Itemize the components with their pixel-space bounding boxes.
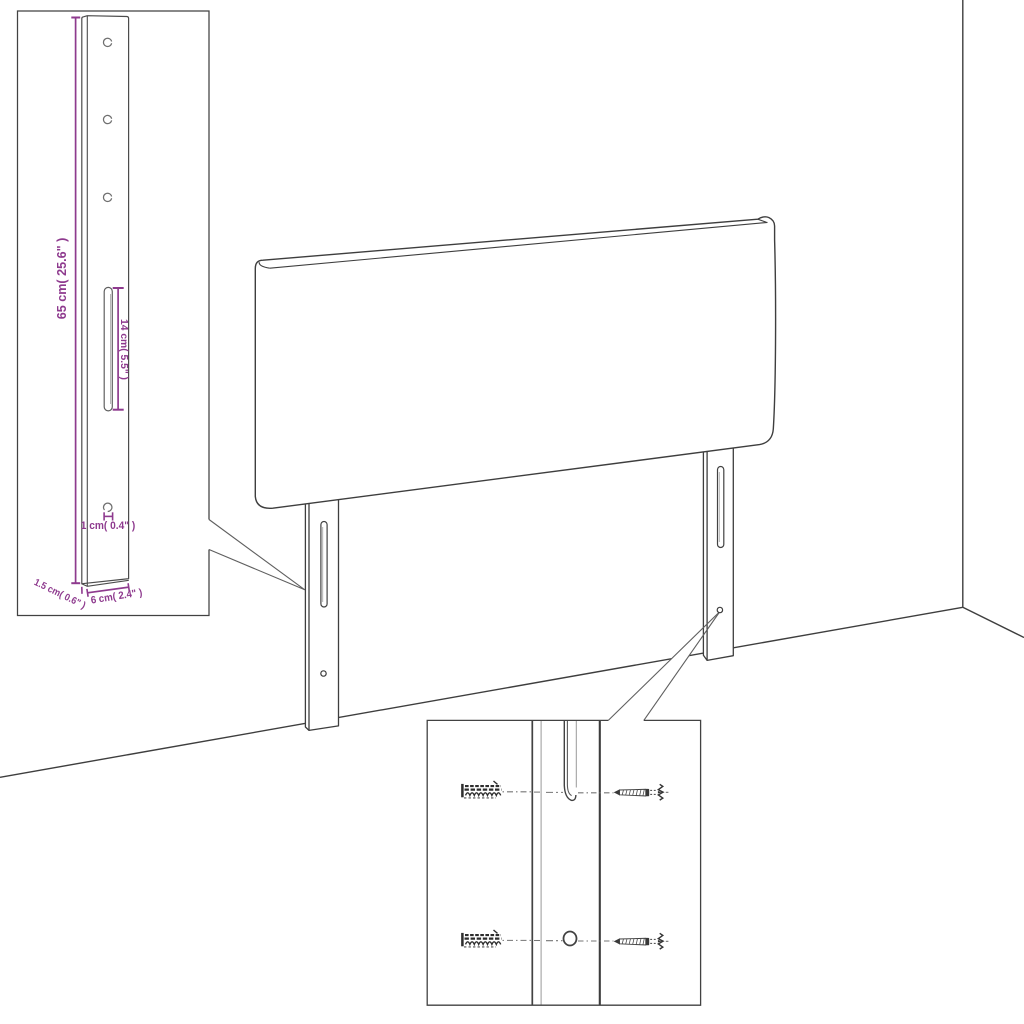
svg-text:14 cm( 5.5" ): 14 cm( 5.5" ) <box>118 319 129 380</box>
svg-text:6 cm( 2.4" ): 6 cm( 2.4" ) <box>90 588 143 607</box>
svg-text:1 cm( 0.4" ): 1 cm( 0.4" ) <box>81 520 136 532</box>
svg-text:65 cm( 25.6" ): 65 cm( 25.6" ) <box>55 238 69 320</box>
